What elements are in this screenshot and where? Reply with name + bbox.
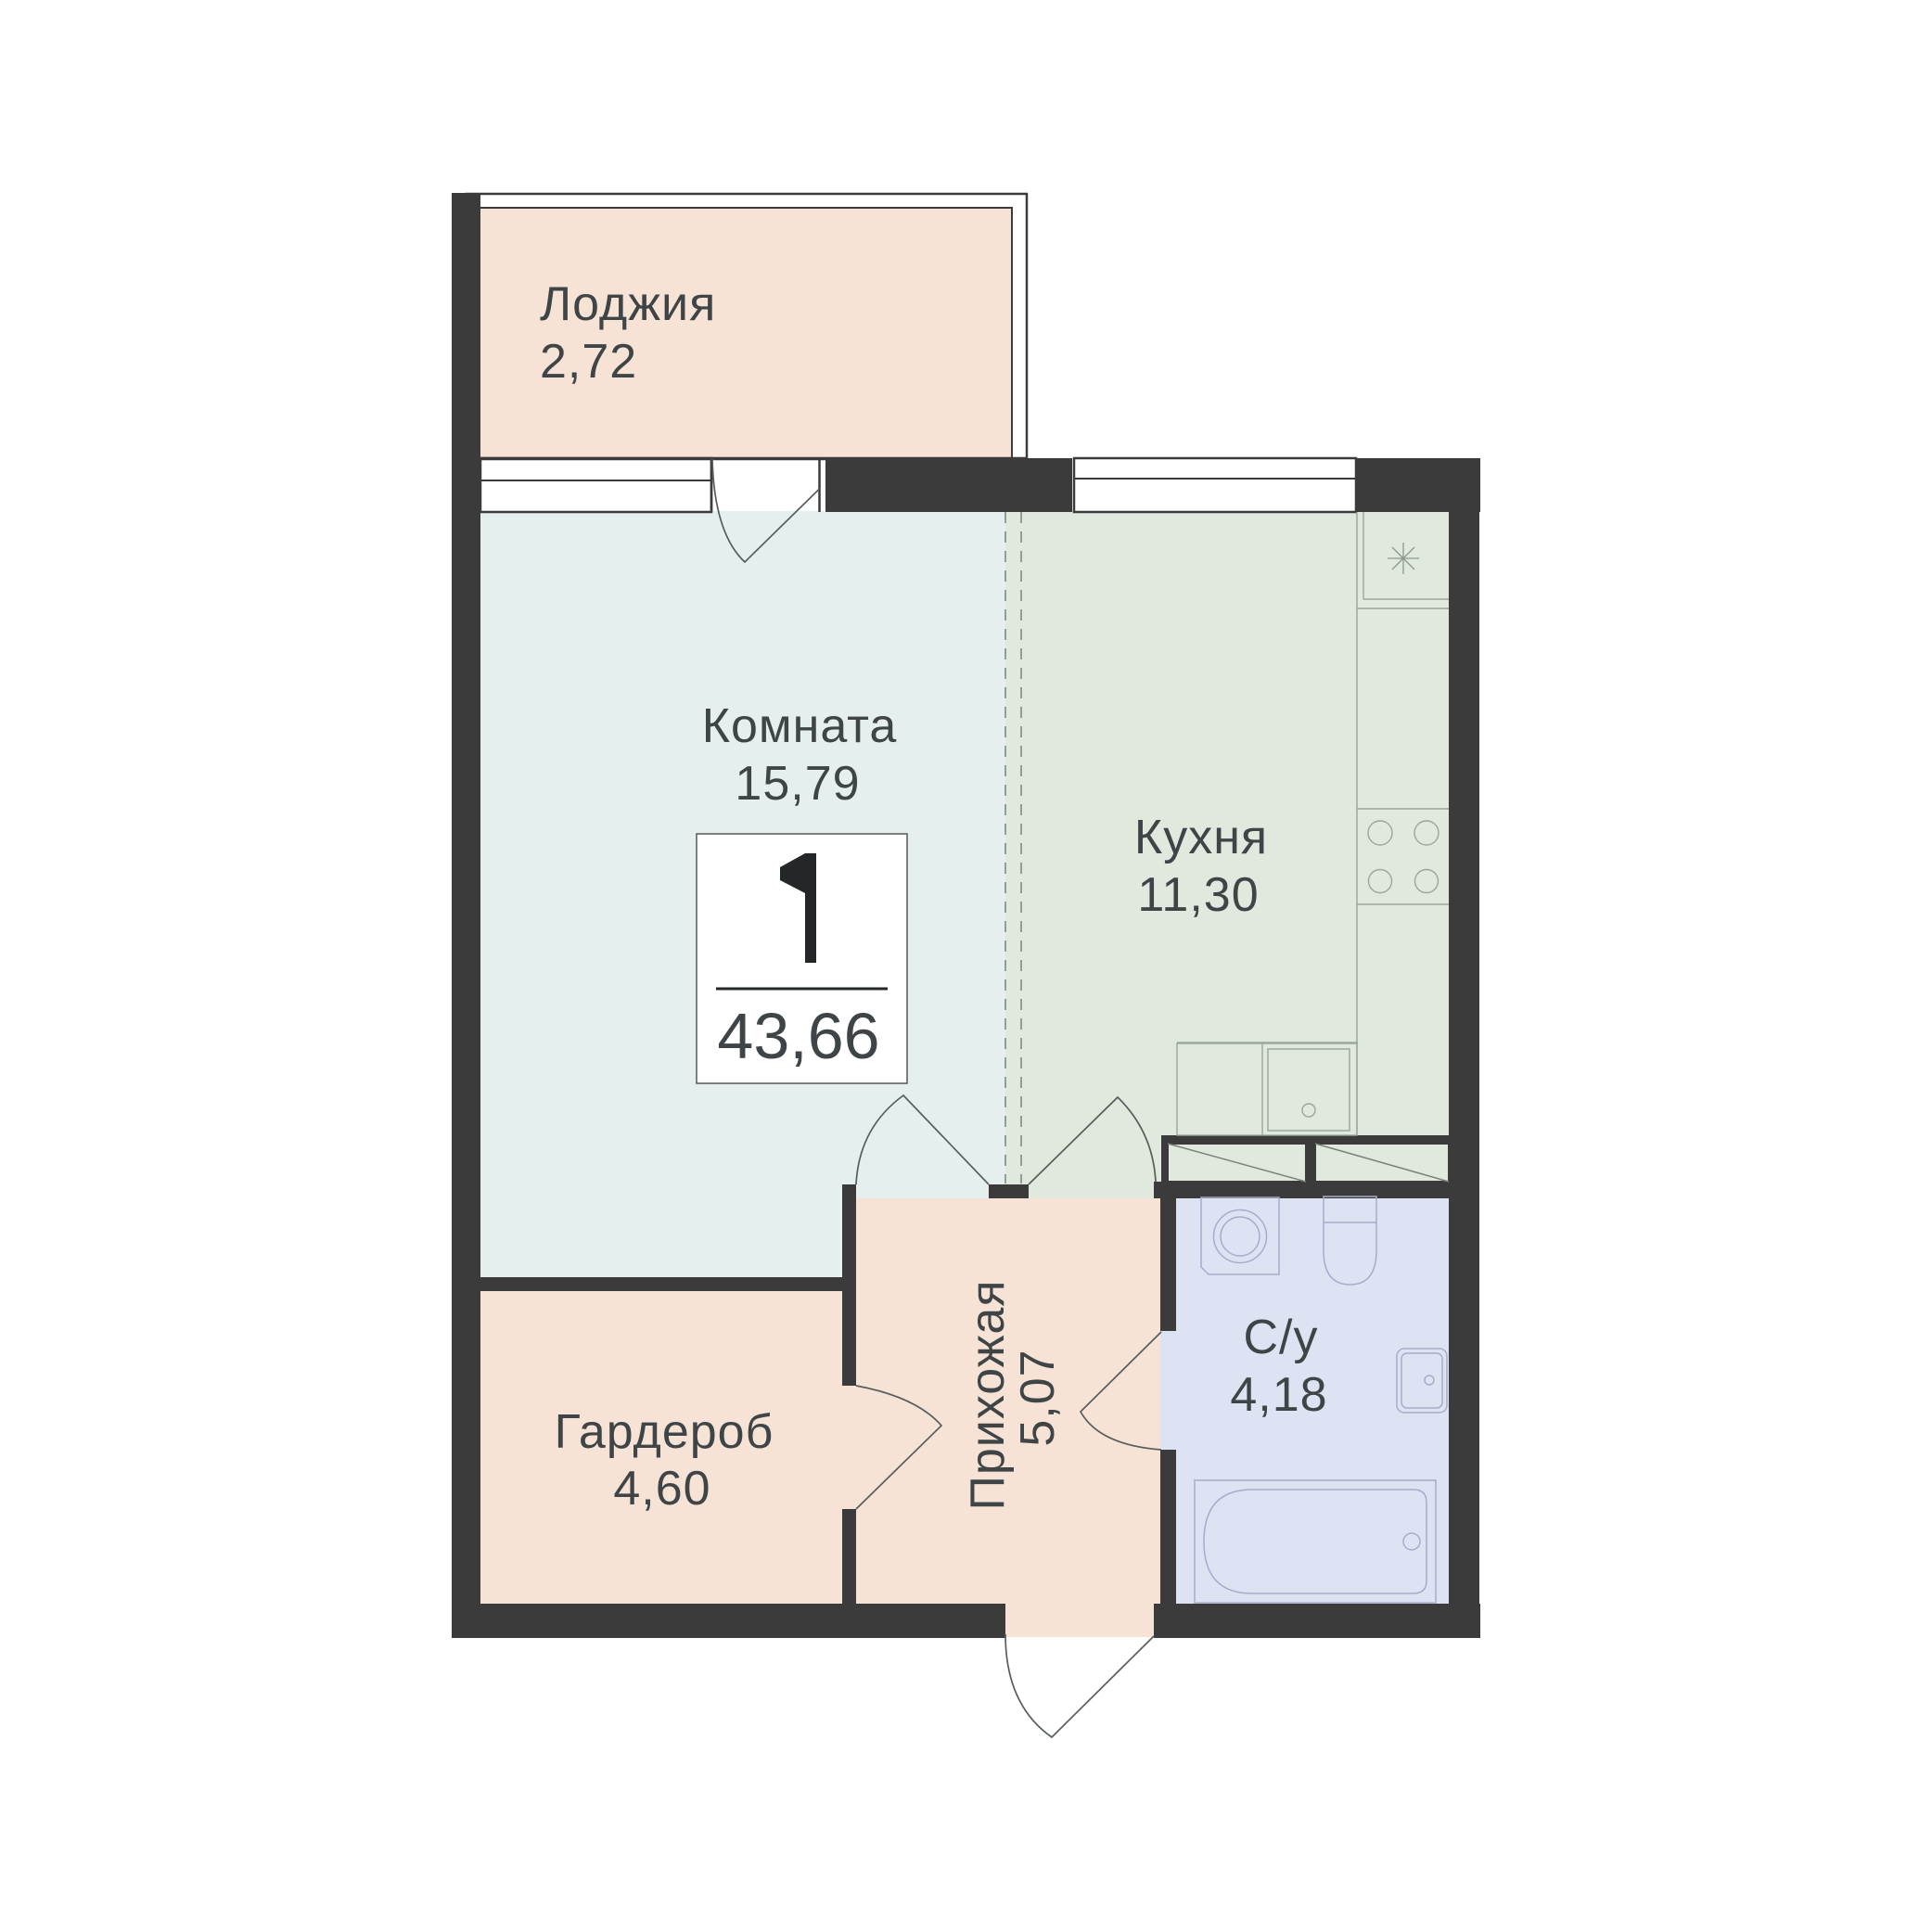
svg-text:С/у: С/у: [1244, 1311, 1319, 1364]
svg-text:Прихожая: Прихожая: [961, 1280, 1015, 1511]
svg-text:11,30: 11,30: [1137, 868, 1259, 922]
svg-text:Гардероб: Гардероб: [555, 1405, 774, 1459]
svg-text:4,18: 4,18: [1230, 1368, 1327, 1422]
svg-text:Кухня: Кухня: [1134, 811, 1268, 864]
svg-text:4,60: 4,60: [613, 1462, 710, 1516]
svg-text:Комната: Комната: [702, 699, 898, 753]
svg-text:43,66: 43,66: [717, 1000, 879, 1072]
svg-text:2,72: 2,72: [540, 335, 637, 389]
svg-text:5,07: 5,07: [1011, 1349, 1065, 1446]
svg-text:Лоджия: Лоджия: [540, 277, 716, 331]
svg-text:15,79: 15,79: [735, 757, 860, 811]
